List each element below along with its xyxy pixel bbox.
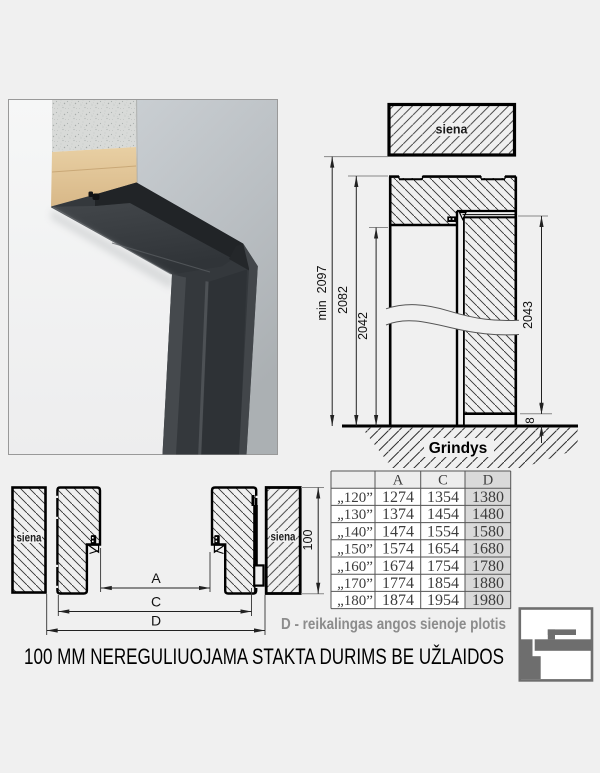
svg-text:1554: 1554 xyxy=(427,523,459,540)
svg-text:100: 100 xyxy=(301,530,315,551)
svg-text:1854: 1854 xyxy=(427,575,459,592)
svg-text:siena: siena xyxy=(17,533,43,545)
svg-text:1480: 1480 xyxy=(472,506,504,523)
svg-text:1580: 1580 xyxy=(472,523,504,540)
svg-text:D: D xyxy=(151,613,161,629)
svg-text:1754: 1754 xyxy=(427,558,459,575)
svg-text:„120”: „120” xyxy=(337,490,373,506)
svg-text:1354: 1354 xyxy=(427,489,459,506)
svg-text:„160”: „160” xyxy=(337,559,373,575)
svg-text:C: C xyxy=(438,473,448,489)
svg-text:1774: 1774 xyxy=(382,575,414,592)
svg-text:siena: siena xyxy=(436,123,469,137)
svg-text:„140”: „140” xyxy=(337,524,373,540)
svg-text:„150”: „150” xyxy=(337,542,373,558)
svg-text:8: 8 xyxy=(525,417,537,423)
svg-text:„180”: „180” xyxy=(337,593,373,609)
svg-text:1274: 1274 xyxy=(382,489,414,506)
svg-text:Grindys: Grindys xyxy=(429,440,488,457)
svg-text:siena: siena xyxy=(271,532,297,544)
svg-text:C: C xyxy=(151,594,161,610)
svg-text:1880: 1880 xyxy=(472,575,504,592)
svg-text:„130”: „130” xyxy=(337,507,373,523)
svg-text:1674: 1674 xyxy=(382,558,414,575)
svg-text:min 2097: min 2097 xyxy=(315,266,329,321)
svg-text:„170”: „170” xyxy=(337,576,373,592)
svg-text:D - reikalingas angos sienoje: D - reikalingas angos sienoje plotis xyxy=(281,616,506,633)
svg-text:1654: 1654 xyxy=(427,541,459,558)
svg-text:2042: 2042 xyxy=(356,312,370,340)
svg-text:100 MM NEREGULIUOJAMA STAKTA D: 100 MM NEREGULIUOJAMA STAKTA DURIMS BE U… xyxy=(24,644,504,669)
svg-text:A: A xyxy=(393,473,404,489)
svg-text:1374: 1374 xyxy=(382,506,414,523)
svg-text:1780: 1780 xyxy=(472,558,504,575)
svg-text:1680: 1680 xyxy=(472,541,504,558)
svg-text:1380: 1380 xyxy=(472,489,504,506)
svg-text:1874: 1874 xyxy=(382,592,414,609)
svg-text:1954: 1954 xyxy=(427,592,459,609)
svg-text:1474: 1474 xyxy=(382,523,414,540)
svg-text:D: D xyxy=(483,473,493,489)
svg-text:1574: 1574 xyxy=(382,541,414,558)
svg-text:2043: 2043 xyxy=(521,301,535,329)
svg-text:1980: 1980 xyxy=(472,592,504,609)
svg-text:2082: 2082 xyxy=(336,286,350,314)
svg-text:A: A xyxy=(151,570,161,586)
svg-text:1454: 1454 xyxy=(427,506,459,523)
